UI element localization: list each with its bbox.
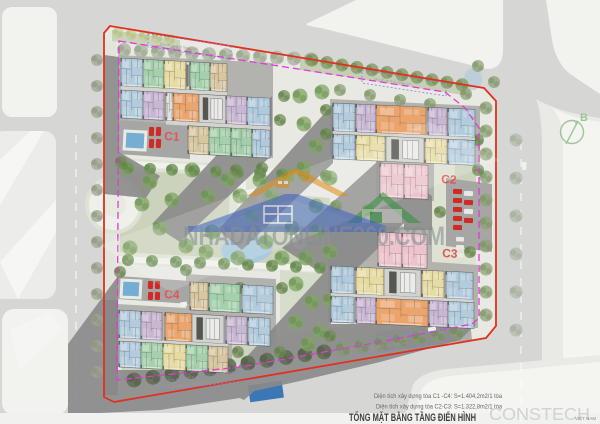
svg-text:TỔNG MẶT BẰNG TẦNG ĐIỂN HÌNH: TỔNG MẶT BẰNG TẦNG ĐIỂN HÌNH (349, 411, 476, 424)
svg-text:Diện tích xây dựng tòa C2-C3:: Diện tích xây dựng tòa C2-C3: S=1.322,8m… (376, 404, 502, 411)
svg-text:C1: C1 (164, 129, 180, 144)
svg-text:NHADATONLINE360.COM: NHADATONLINE360.COM (183, 221, 445, 251)
svg-text:Diện tích xây dựng tòa C1 -C4:: Diện tích xây dựng tòa C1 -C4: S=1.404,2… (374, 393, 502, 400)
svg-text:CONSTECH: CONSTECH (489, 404, 590, 424)
svg-text:VIỆT NAM: VIỆT NAM (575, 414, 596, 421)
svg-text:B: B (580, 112, 588, 124)
